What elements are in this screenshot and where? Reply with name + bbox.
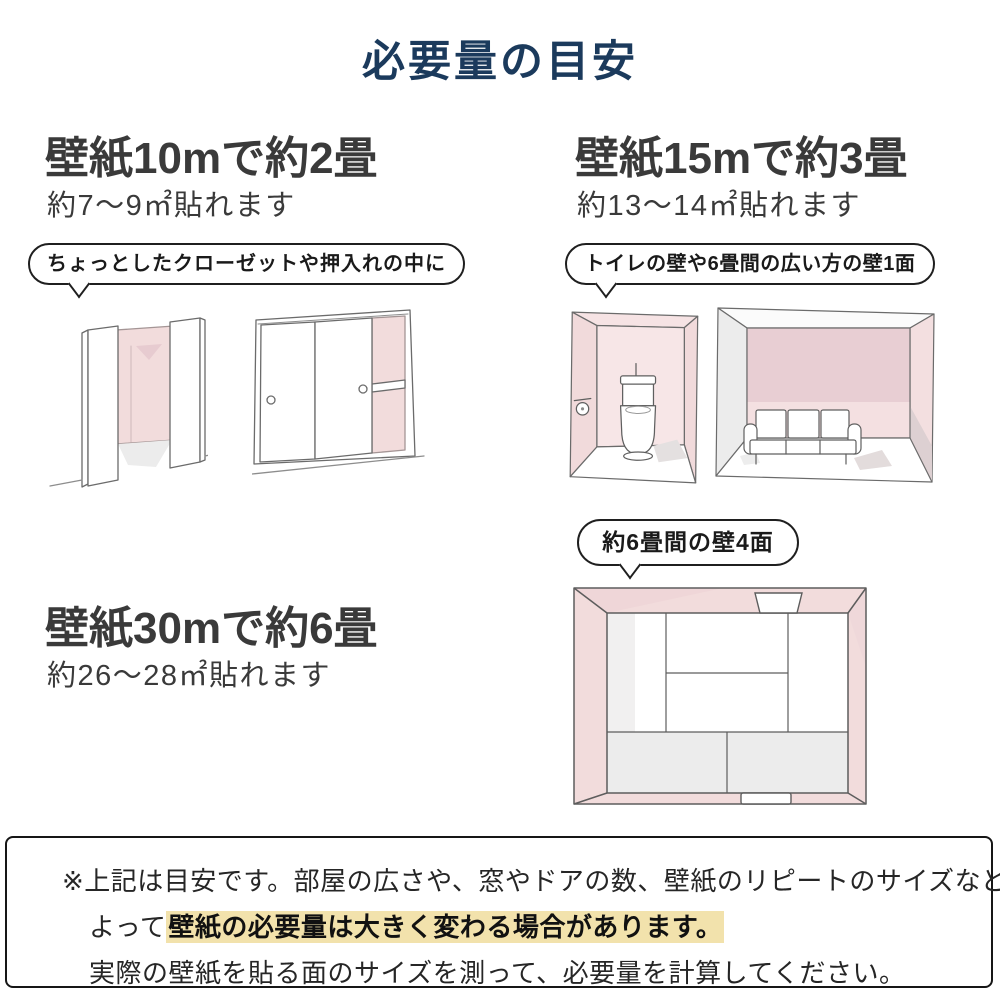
section-10m-speech-bubble: ちょっとしたクローゼットや押入れの中に [28,243,465,285]
left-door-edge [82,330,88,487]
toilet-base [624,452,653,460]
section-10m-subheading: 約7〜9㎡貼れます [47,182,296,224]
sofa-back-cushion [788,410,819,438]
right-door [170,318,200,468]
sofa-room-illustration [714,306,938,486]
section-30m-subheading: 約26〜28㎡貼れます [47,652,331,694]
sliding-panel-left [260,322,315,462]
section-15m-subheading: 約13〜14㎡貼れます [577,182,861,224]
sofa-seat-base [750,440,856,454]
section-10m-heading: 壁紙10mで約2畳 [45,122,378,186]
note-highlight: 壁紙の必要量は大きく変わる場合があります。 [166,911,724,943]
right-door-edge [200,318,205,462]
left-door [88,326,118,486]
section-15m-speech-bubble: トイレの壁や6畳間の広い方の壁1面 [565,243,935,285]
note-box: ※上記は目安です。部屋の広さや、窓やドアの数、壁紙のリピートのサイズなどに よっ… [5,836,993,988]
note-line-3: 実際の壁紙を貼る面のサイズを測って、必要量を計算してください。 [89,950,971,996]
section-30m-heading: 壁紙30mで約6畳 [45,592,378,656]
floor-shadow [118,440,172,467]
sofa-back-cushion [756,410,786,438]
section-30m-speech-bubble: 約6畳間の壁4面 [577,519,799,566]
section-15m-heading: 壁紙15mで約3畳 [575,122,908,186]
wallpaper-quantity-infographic: 必要量の目安 壁紙10mで約2畳 約7〜9㎡貼れます ちょっとしたクローゼットや… [0,0,1000,1000]
note-line-2-prefix: よって [89,912,166,942]
toilet-room-illustration [568,306,704,488]
page-title: 必要量の目安 [0,27,1000,89]
note-line-1: ※上記は目安です。部屋の広さや、窓やドアの数、壁紙のリピートのサイズなどに [62,858,971,904]
door-sill-bottom [741,793,791,804]
open-closet-illustration [48,306,208,488]
ceiling [718,308,934,328]
tatami-gray-strip [607,613,635,732]
back-wall-upper [747,328,910,402]
tatami-room-top-view-illustration [573,587,867,805]
door-handle [359,385,367,393]
sofa-back-cushion [821,410,849,438]
note-line-2: よって壁紙の必要量は大きく変わる場合があります。 [89,904,971,950]
sliding-closet-illustration [252,304,427,484]
closet-back-wall [116,326,174,444]
toilet-tank-lid [621,376,656,384]
door-handle [267,396,275,404]
door-opening-top [755,593,802,613]
toilet-tank [623,384,654,406]
